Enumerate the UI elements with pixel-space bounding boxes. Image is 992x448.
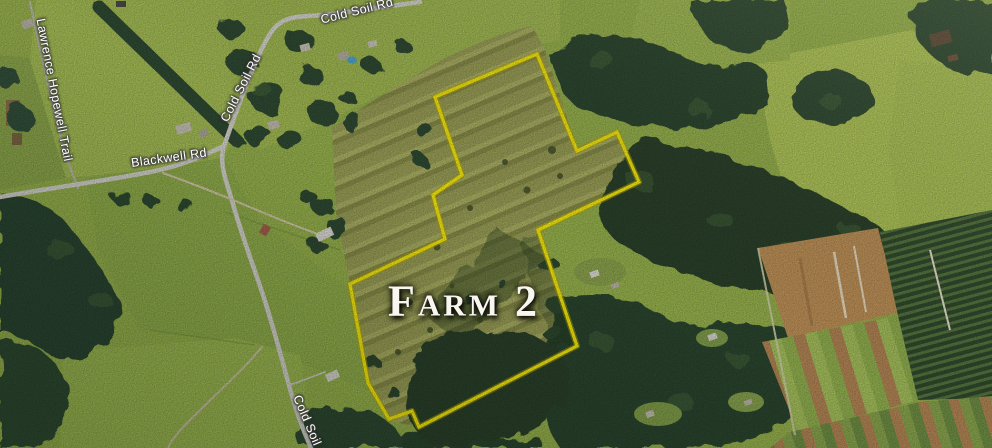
satellite-map: Farm 2 Lawrence Hopewell TrailBlackwell … bbox=[0, 0, 992, 448]
light-overlay bbox=[0, 0, 992, 448]
satellite-imagery bbox=[0, 0, 992, 448]
